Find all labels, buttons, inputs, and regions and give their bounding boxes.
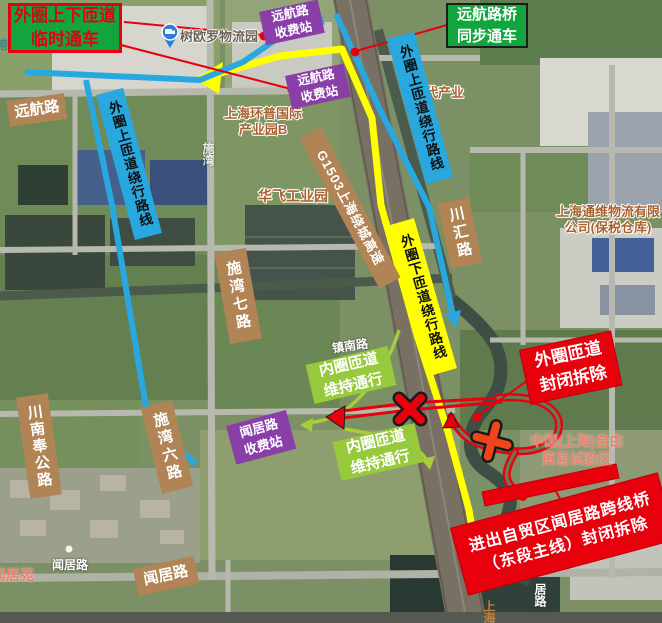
green-arrowhead-south: [421, 456, 435, 470]
closure-plus-mark: [472, 421, 511, 460]
traffic-detour-map: 树欧罗物流园 上海环普国际 产业园B 华飞工业园 现代产业 上海通维物流有限 公…: [0, 0, 662, 623]
green-arrowhead-west: [300, 418, 313, 432]
closure-x-mark: [399, 398, 421, 420]
red-arrowhead-west: [326, 406, 345, 429]
map-text-logistics-park: 树欧罗物流园: [180, 26, 258, 45]
map-text-wenjuyuan: 闻居苑: [0, 566, 34, 584]
logistics-pin-icon: [162, 24, 178, 48]
notice-outer-ramps-temp-open: 外圈上下匝道临时通车: [8, 3, 122, 53]
map-text-shanghai-fragment: 上海: [481, 600, 498, 623]
on-ramp-detour-branch: [86, 80, 196, 464]
map-text-julu-fragment: 居路: [532, 583, 549, 607]
leader-dot: [473, 413, 482, 422]
map-text-huanpu: 上海环普国际 产业园B: [224, 106, 302, 139]
map-text-shiwan-faint: 施湾: [200, 142, 217, 166]
map-text-ftz: 中国(上海)自由 贸易试验区: [530, 432, 623, 468]
leader-dot: [351, 48, 360, 57]
map-text-wenju-small: 闻居路: [52, 556, 88, 573]
blue-arrowhead-south: [445, 310, 461, 328]
poi-dot: [66, 546, 73, 553]
map-text-huafei: 华飞工业园: [258, 188, 328, 206]
notice-bridge-sync-open: 远航路桥同步通车: [446, 3, 528, 48]
map-text-tongwei: 上海通维物流有限 公司(保税仓库): [556, 204, 660, 237]
map-text-gang-fragment: 港: [0, 36, 8, 53]
